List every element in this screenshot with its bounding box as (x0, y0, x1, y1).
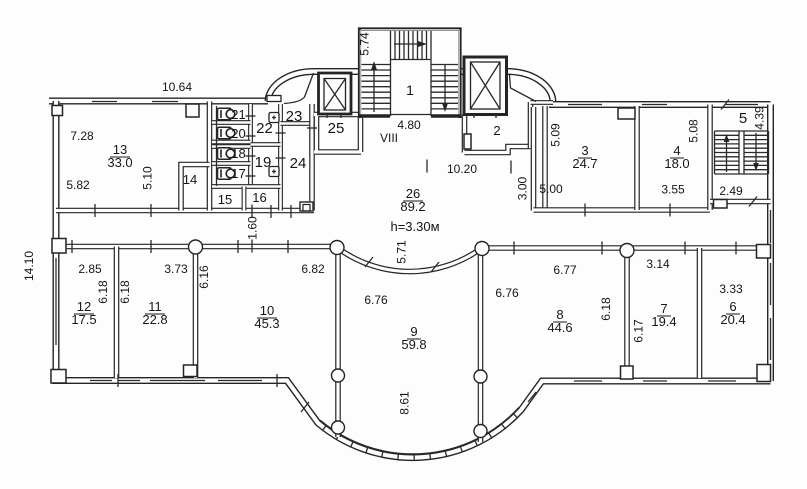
svg-text:VIII: VIII (380, 131, 398, 145)
svg-text:5.74: 5.74 (358, 32, 372, 56)
svg-text:22.8: 22.8 (142, 312, 167, 327)
svg-text:44.6: 44.6 (547, 320, 572, 335)
svg-text:5.10: 5.10 (141, 166, 155, 190)
svg-text:4.39: 4.39 (753, 106, 767, 130)
svg-text:3.33: 3.33 (719, 282, 743, 296)
svg-text:6.76: 6.76 (364, 293, 388, 307)
svg-text:2.85: 2.85 (78, 262, 102, 276)
svg-text:23: 23 (286, 108, 303, 125)
svg-text:10.64: 10.64 (162, 80, 192, 94)
svg-text:5.08: 5.08 (687, 119, 701, 143)
svg-text:10.20: 10.20 (447, 162, 477, 176)
svg-text:33.0: 33.0 (107, 155, 132, 170)
svg-text:5.71: 5.71 (395, 240, 409, 264)
svg-text:6.77: 6.77 (553, 263, 577, 277)
svg-text:6.82: 6.82 (301, 262, 325, 276)
svg-text:18: 18 (231, 146, 245, 161)
svg-text:89.2: 89.2 (400, 199, 425, 214)
svg-text:6.18: 6.18 (118, 280, 132, 304)
svg-text:7.28: 7.28 (70, 129, 94, 143)
svg-text:3.55: 3.55 (661, 183, 685, 197)
svg-text:1: 1 (406, 82, 414, 98)
svg-text:3.14: 3.14 (646, 257, 670, 271)
svg-text:16: 16 (252, 190, 266, 205)
svg-text:22: 22 (256, 120, 273, 137)
svg-text:25: 25 (328, 120, 345, 137)
svg-text:4.80: 4.80 (397, 118, 421, 132)
svg-text:15: 15 (218, 192, 232, 207)
svg-text:5.09: 5.09 (549, 123, 563, 147)
svg-text:19.4: 19.4 (651, 314, 676, 329)
svg-text:59.8: 59.8 (401, 337, 426, 352)
svg-text:6.16: 6.16 (197, 265, 211, 289)
svg-text:17: 17 (231, 166, 245, 181)
svg-text:18.0: 18.0 (664, 156, 689, 171)
svg-text:1.60: 1.60 (246, 216, 260, 240)
svg-text:21: 21 (231, 107, 245, 122)
svg-text:17.5: 17.5 (71, 312, 96, 327)
svg-text:5.82: 5.82 (66, 178, 90, 192)
svg-text:20: 20 (231, 126, 245, 141)
svg-text:19: 19 (255, 154, 272, 171)
svg-text:24: 24 (290, 155, 307, 172)
svg-text:3.73: 3.73 (164, 262, 188, 276)
svg-text:24.7: 24.7 (572, 156, 597, 171)
svg-text:6.76: 6.76 (495, 286, 519, 300)
svg-text:6.18: 6.18 (96, 280, 110, 304)
svg-text:20.4: 20.4 (720, 312, 745, 327)
svg-text:5: 5 (739, 110, 747, 127)
svg-text:14: 14 (183, 172, 197, 187)
svg-text:45.3: 45.3 (254, 316, 279, 331)
svg-text:h=3.30м: h=3.30м (390, 219, 439, 234)
svg-text:2: 2 (493, 123, 500, 138)
svg-text:3.00: 3.00 (516, 176, 530, 200)
svg-text:2.49: 2.49 (719, 184, 743, 198)
svg-text:8.61: 8.61 (398, 391, 412, 415)
svg-text:5.00: 5.00 (539, 182, 563, 196)
svg-text:6.17: 6.17 (632, 319, 646, 343)
svg-text:14.10: 14.10 (22, 251, 36, 281)
svg-text:6.18: 6.18 (599, 297, 613, 321)
